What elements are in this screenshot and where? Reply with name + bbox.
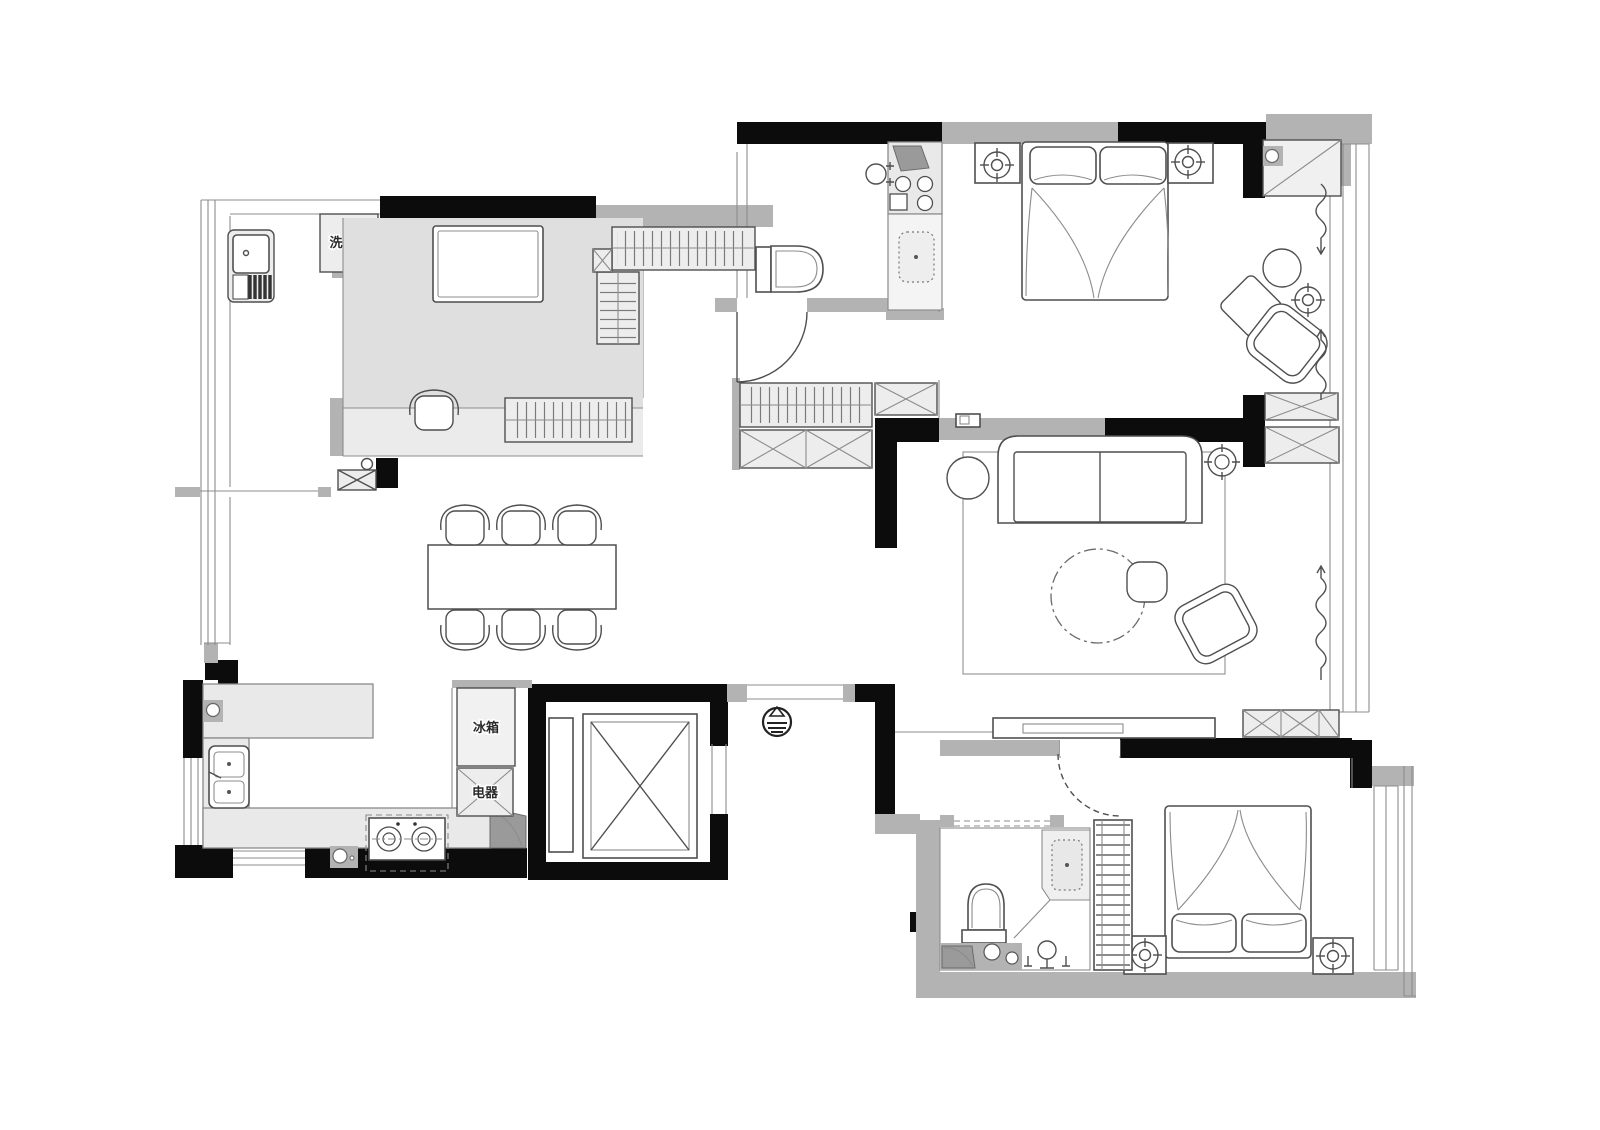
bed-2 bbox=[1165, 806, 1311, 958]
appliance-label: 电器 bbox=[472, 785, 499, 800]
dining-chair bbox=[553, 505, 602, 545]
round-side-table bbox=[1263, 249, 1301, 287]
side-table-small bbox=[1127, 562, 1167, 602]
floor-plan-drawing: 洗衣机 bbox=[0, 0, 1600, 1130]
elevator-duct bbox=[549, 718, 573, 852]
bathroom-1-door bbox=[737, 312, 807, 382]
bathroom-1 bbox=[737, 142, 942, 382]
entry-door-mark bbox=[763, 707, 791, 736]
dining-chair bbox=[497, 505, 546, 545]
bathtub-1 bbox=[888, 214, 942, 310]
bathroom-2 bbox=[940, 821, 1090, 970]
shoe-cabinet bbox=[1243, 710, 1339, 737]
laundry-sink bbox=[228, 230, 274, 302]
dining-chair bbox=[497, 610, 546, 650]
master-bed bbox=[1022, 142, 1169, 300]
fridge: 冰箱 bbox=[457, 688, 515, 766]
closet-top bbox=[593, 227, 755, 272]
floor-drain bbox=[362, 459, 373, 470]
study-side-shelf bbox=[597, 272, 639, 344]
kitchen-sink bbox=[209, 746, 249, 808]
armchair-living bbox=[1170, 579, 1262, 668]
wardrobe-top-right bbox=[1263, 140, 1341, 196]
study-wardrobe bbox=[505, 398, 632, 442]
master-bedroom bbox=[975, 140, 1341, 463]
shower-area bbox=[1014, 830, 1090, 938]
elevator bbox=[549, 714, 697, 858]
fridge-label: 冰箱 bbox=[473, 720, 499, 735]
appliance-cabinet: 电器 bbox=[457, 768, 513, 816]
shower-mixer bbox=[1024, 941, 1070, 968]
sofa bbox=[998, 436, 1202, 523]
drying-rack-shelf bbox=[1094, 820, 1132, 970]
balcony-cabinet bbox=[338, 470, 376, 490]
dining-area bbox=[428, 505, 616, 650]
toilet-1 bbox=[756, 246, 823, 292]
dining-chair bbox=[441, 610, 490, 650]
storage-boxes-window bbox=[1265, 393, 1339, 463]
study-room bbox=[343, 218, 755, 456]
dining-table bbox=[428, 545, 616, 609]
floor-plan-canvas: 洗衣机 bbox=[0, 0, 1600, 1130]
closet-box-right bbox=[875, 383, 937, 415]
kitchen: 冰箱 电器 bbox=[203, 684, 526, 871]
hanging-closet bbox=[740, 383, 872, 427]
bathroom-2-counter bbox=[940, 943, 1022, 970]
bedroom-2 bbox=[1058, 740, 1353, 974]
toilet-2 bbox=[962, 884, 1006, 943]
console-cabinet bbox=[993, 718, 1215, 738]
dining-chair bbox=[441, 505, 490, 545]
dining-chair bbox=[553, 610, 602, 650]
closet-box-bottom bbox=[740, 430, 872, 468]
meter-box bbox=[203, 700, 223, 722]
sofa-side-table bbox=[947, 457, 989, 499]
sliding-door bbox=[954, 821, 1050, 826]
study-desk bbox=[433, 226, 543, 302]
bedroom-2-door-arc bbox=[1058, 754, 1120, 816]
entry-hall bbox=[763, 707, 791, 736]
vanity-1 bbox=[888, 142, 942, 214]
curtain-icon bbox=[1316, 566, 1326, 680]
counter-top bbox=[203, 684, 373, 738]
ceiling-light-living bbox=[1204, 444, 1240, 480]
counter-appliance-box bbox=[330, 846, 358, 868]
